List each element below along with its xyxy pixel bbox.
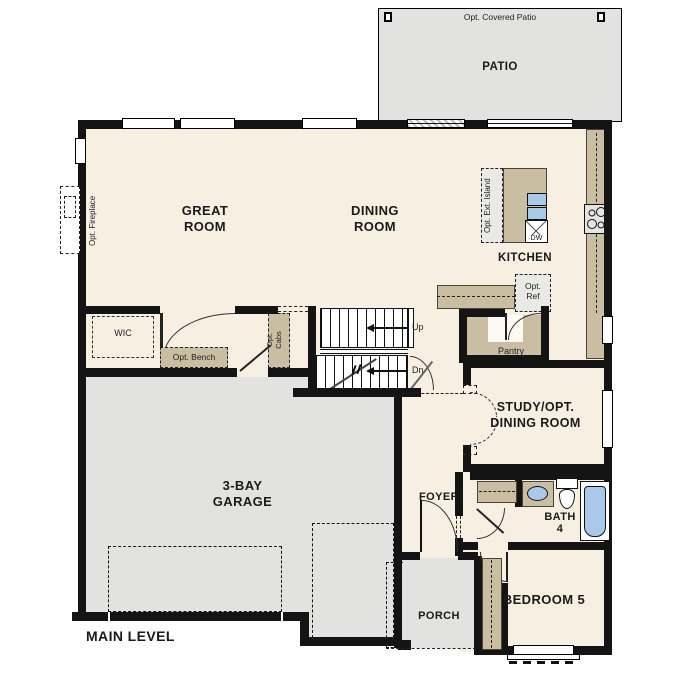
stairs-landing [320, 349, 408, 354]
stairs-dn-arrowhead [366, 367, 374, 375]
front-door-leaf [420, 500, 422, 552]
back-counter-dash [437, 296, 515, 297]
pantry-door-leaf [505, 313, 507, 340]
great-room-line1: GREAT [140, 203, 270, 219]
wall [78, 306, 160, 314]
cased-opening [460, 516, 461, 538]
porch-dashed-edge [386, 648, 476, 649]
cased-opening [278, 306, 308, 307]
porch-label: PORCH [402, 610, 476, 624]
kitchen-sink [527, 193, 547, 206]
window [180, 118, 235, 129]
wall [235, 306, 278, 314]
floor-plan: Opt. Covered Patio PATIO Opt. Ext. Islan… [0, 0, 687, 687]
garage-line2: GARAGE [170, 494, 315, 510]
toilet-tank [556, 478, 578, 489]
wall [470, 472, 608, 480]
garage-bay-dashed [108, 546, 282, 612]
wall [604, 120, 612, 655]
patio-label: PATIO [378, 60, 622, 74]
dining-room-label: DINING ROOM [310, 203, 440, 236]
opt-ref-label-1: Opt. [516, 281, 550, 291]
cased-opening [278, 311, 308, 312]
study-line2: DINING ROOM [463, 416, 608, 432]
kitchen-back-counter [437, 285, 515, 309]
opt-covered-patio-label: Opt. Covered Patio [378, 12, 622, 22]
wall [78, 368, 237, 377]
garage-door-tick [281, 612, 283, 622]
wall [463, 464, 608, 472]
wall [308, 306, 316, 397]
linen-dash [479, 491, 515, 492]
patio-slider-door [407, 119, 465, 128]
dining-room-line1: DINING [310, 203, 440, 219]
window-dashes [509, 661, 579, 664]
dishwasher: DW [525, 220, 548, 243]
great-room-label: GREAT ROOM [140, 203, 270, 236]
opt-cabs-line1: Opt. [265, 319, 274, 361]
opt-bench-label: Opt. Bench [160, 352, 228, 362]
opt-ref-label-2: Ref [516, 291, 550, 301]
patio-slider-door [487, 119, 573, 128]
bath-sink [527, 486, 548, 501]
porch-dashed-extension [386, 562, 403, 648]
window-sill [507, 654, 580, 660]
wic-label: WIC [92, 328, 154, 338]
garage-door-tick [108, 612, 110, 622]
garage-bay-dashed [312, 523, 394, 638]
bedroom-door-leaf [506, 552, 508, 582]
bath-line1: BATH [540, 511, 580, 523]
kitchen-label: KITCHEN [480, 251, 570, 265]
foyer-label: FOYER [400, 491, 478, 505]
stairs-up-arrow-line [374, 327, 408, 329]
study-label: STUDY/OPT. DINING ROOM [463, 400, 608, 431]
wall [508, 542, 608, 550]
stairs-lower-flight [315, 355, 408, 392]
window [302, 118, 357, 129]
wall [463, 360, 471, 385]
bathtub-basin [584, 486, 606, 537]
ceiling-break-line [402, 393, 463, 394]
bath-line2: 4 [540, 523, 580, 535]
linen-closet [477, 481, 517, 503]
kitchen-sink-2 [527, 207, 547, 220]
dishwasher-label: DW [526, 235, 547, 242]
garage-line1: 3-BAY [170, 478, 315, 494]
wall [455, 542, 478, 550]
great-room-line2: ROOM [140, 219, 270, 235]
porch-floor [402, 558, 476, 648]
window [122, 118, 175, 129]
opt-cabs-label: Opt. Cabs [265, 319, 293, 361]
wall [463, 360, 608, 368]
stairs-dn-arrow-line [374, 370, 408, 372]
opt-ext-island-label: Opt. Ext. Island [483, 170, 501, 241]
opt-fireplace-label: Opt. Fireplace [88, 186, 100, 256]
opt-fireplace-inner [64, 196, 76, 218]
dining-room-line2: ROOM [310, 219, 440, 235]
bath-label: BATH 4 [540, 511, 580, 535]
wall [268, 368, 308, 377]
window [75, 138, 86, 164]
wall [394, 552, 420, 560]
stairs-up-arrowhead [366, 324, 374, 332]
study-door-jamb [463, 446, 477, 455]
study-line1: STUDY/OPT. [463, 400, 608, 416]
bedroom5-label: BEDROOM 5 [480, 592, 608, 608]
main-level-title: MAIN LEVEL [86, 628, 286, 646]
opt-cabs-line2: Cabs [274, 319, 283, 361]
stairs-up-label: Up [412, 322, 432, 332]
garage-label: 3-BAY GARAGE [170, 478, 315, 511]
window [602, 316, 613, 344]
